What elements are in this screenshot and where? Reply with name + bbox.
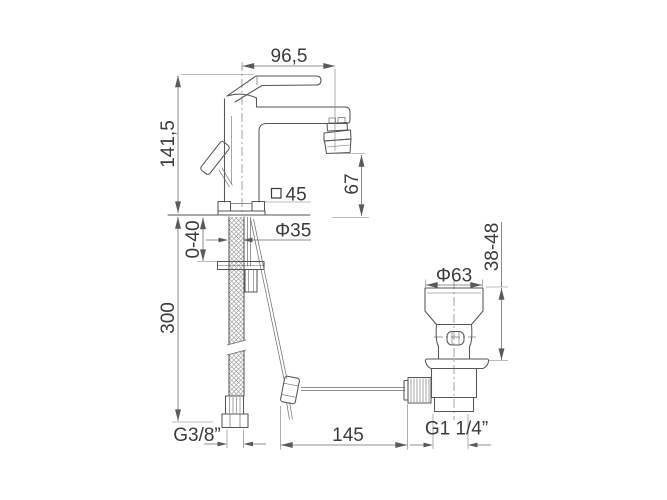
dimension-square-45: 45 <box>265 185 311 206</box>
dim-shank-diameter-label: Φ35 <box>275 221 311 242</box>
dim-hose-length-label: 300 <box>158 302 179 334</box>
dim-outlet-height-label: 67 <box>342 173 363 194</box>
dim-rod-length-label: 145 <box>332 425 364 446</box>
supply-hose <box>222 217 248 428</box>
dim-waste-cap-diameter-label: Φ63 <box>436 266 472 287</box>
faucet-body <box>200 76 351 215</box>
popup-waste <box>404 288 489 412</box>
dimension-phi35: Φ35 <box>206 221 311 243</box>
technical-drawing-page: 96,5 141,5 67 45 Φ35 0-40 300 Φ63 <box>0 0 667 500</box>
dimension-141-5: 141,5 <box>158 75 254 214</box>
aerator <box>324 118 351 154</box>
dim-spout-reach-label: 96,5 <box>271 46 308 67</box>
dimension-145: 145 <box>281 404 408 450</box>
popup-rod-linkage <box>251 219 406 420</box>
dim-body-height-label: 141,5 <box>158 120 179 168</box>
faucet-base <box>218 202 265 216</box>
label-inlet-thread: G3/8” <box>173 425 221 446</box>
dimension-phi63: Φ63 <box>426 266 483 288</box>
dim-mounting-range-label: 0-40 <box>183 220 204 258</box>
square-symbol <box>272 189 282 199</box>
dimension-g38: G3/8” <box>173 425 266 448</box>
faucet-technical-drawing: 96,5 141,5 67 45 Φ35 0-40 300 Φ63 <box>0 0 667 500</box>
dim-base-square-label: 45 <box>286 185 307 206</box>
lever-knob <box>200 140 233 187</box>
dimension-0-40: 0-40 <box>183 218 217 262</box>
label-waste-thread: G1 1/4” <box>425 419 488 440</box>
dimension-g114: G1 1/4” <box>410 414 491 449</box>
dimension-38-48: 38-48 <box>482 222 508 361</box>
dimension-67: 67 <box>332 154 369 218</box>
dim-waste-height-range-label: 38-48 <box>482 223 503 272</box>
